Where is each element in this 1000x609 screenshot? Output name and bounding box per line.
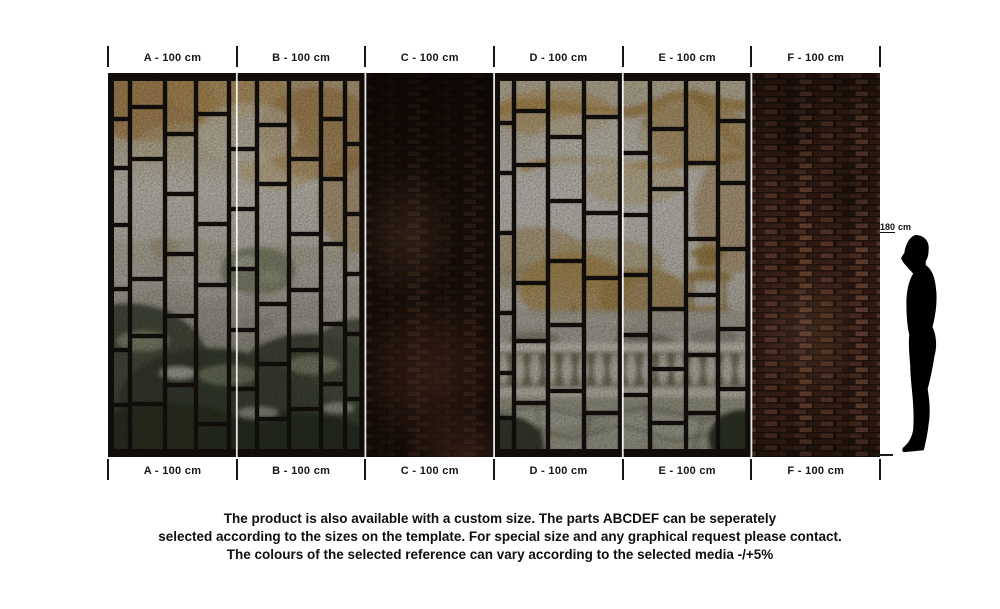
segment-label: C - 100 cm <box>401 52 459 64</box>
description-line-3: The colours of the selected reference ca… <box>0 546 1000 564</box>
figure-ground-mark <box>876 454 893 456</box>
ruler-segment-d: D - 100 cm <box>494 463 623 479</box>
ruler-segment-f: F - 100 cm <box>751 50 880 66</box>
ruler-segment-b: B - 100 cm <box>237 463 366 479</box>
segment-label: B - 100 cm <box>272 52 330 64</box>
segment-label: F - 100 cm <box>787 465 844 477</box>
height-label: 180cm <box>880 222 911 232</box>
wallpaper-size-template-page: A - 100 cm B - 100 cm C - 100 cm D - 100… <box>0 0 1000 609</box>
segment-label: D - 100 cm <box>529 52 587 64</box>
segment-label: F - 100 cm <box>787 52 844 64</box>
segment-label: E - 100 cm <box>658 465 715 477</box>
panel-seam-line <box>751 73 753 457</box>
mural-artwork <box>108 73 880 457</box>
segment-label: A - 100 cm <box>144 52 202 64</box>
ruler-segment-b: B - 100 cm <box>237 50 366 66</box>
ruler-segment-c: C - 100 cm <box>365 463 494 479</box>
ruler-segment-a: A - 100 cm <box>108 50 237 66</box>
ruler-segment-d: D - 100 cm <box>494 50 623 66</box>
wallpaper-mural-preview <box>108 73 880 457</box>
panel-seam-line <box>493 73 495 457</box>
human-silhouette-icon <box>889 234 947 457</box>
segment-label: B - 100 cm <box>272 465 330 477</box>
ruler-segment-a: A - 100 cm <box>108 463 237 479</box>
ruler-segment-f: F - 100 cm <box>751 463 880 479</box>
ruler-segment-c: C - 100 cm <box>365 50 494 66</box>
height-unit: cm <box>898 222 911 232</box>
ruler-segment-e: E - 100 cm <box>623 50 752 66</box>
panel-seam-line <box>622 73 624 457</box>
description-line-2: selected according to the sizes on the t… <box>0 528 1000 546</box>
description-line-1: The product is also available with a cus… <box>0 510 1000 528</box>
segment-label: C - 100 cm <box>401 465 459 477</box>
description-text: The product is also available with a cus… <box>0 510 1000 564</box>
segment-label: D - 100 cm <box>529 465 587 477</box>
panel-seam-line <box>365 73 367 457</box>
ruler-segment-e: E - 100 cm <box>623 463 752 479</box>
height-value: 180 <box>880 222 895 233</box>
segment-label: E - 100 cm <box>658 52 715 64</box>
segment-label: A - 100 cm <box>144 465 202 477</box>
panel-seam-line <box>236 73 238 457</box>
